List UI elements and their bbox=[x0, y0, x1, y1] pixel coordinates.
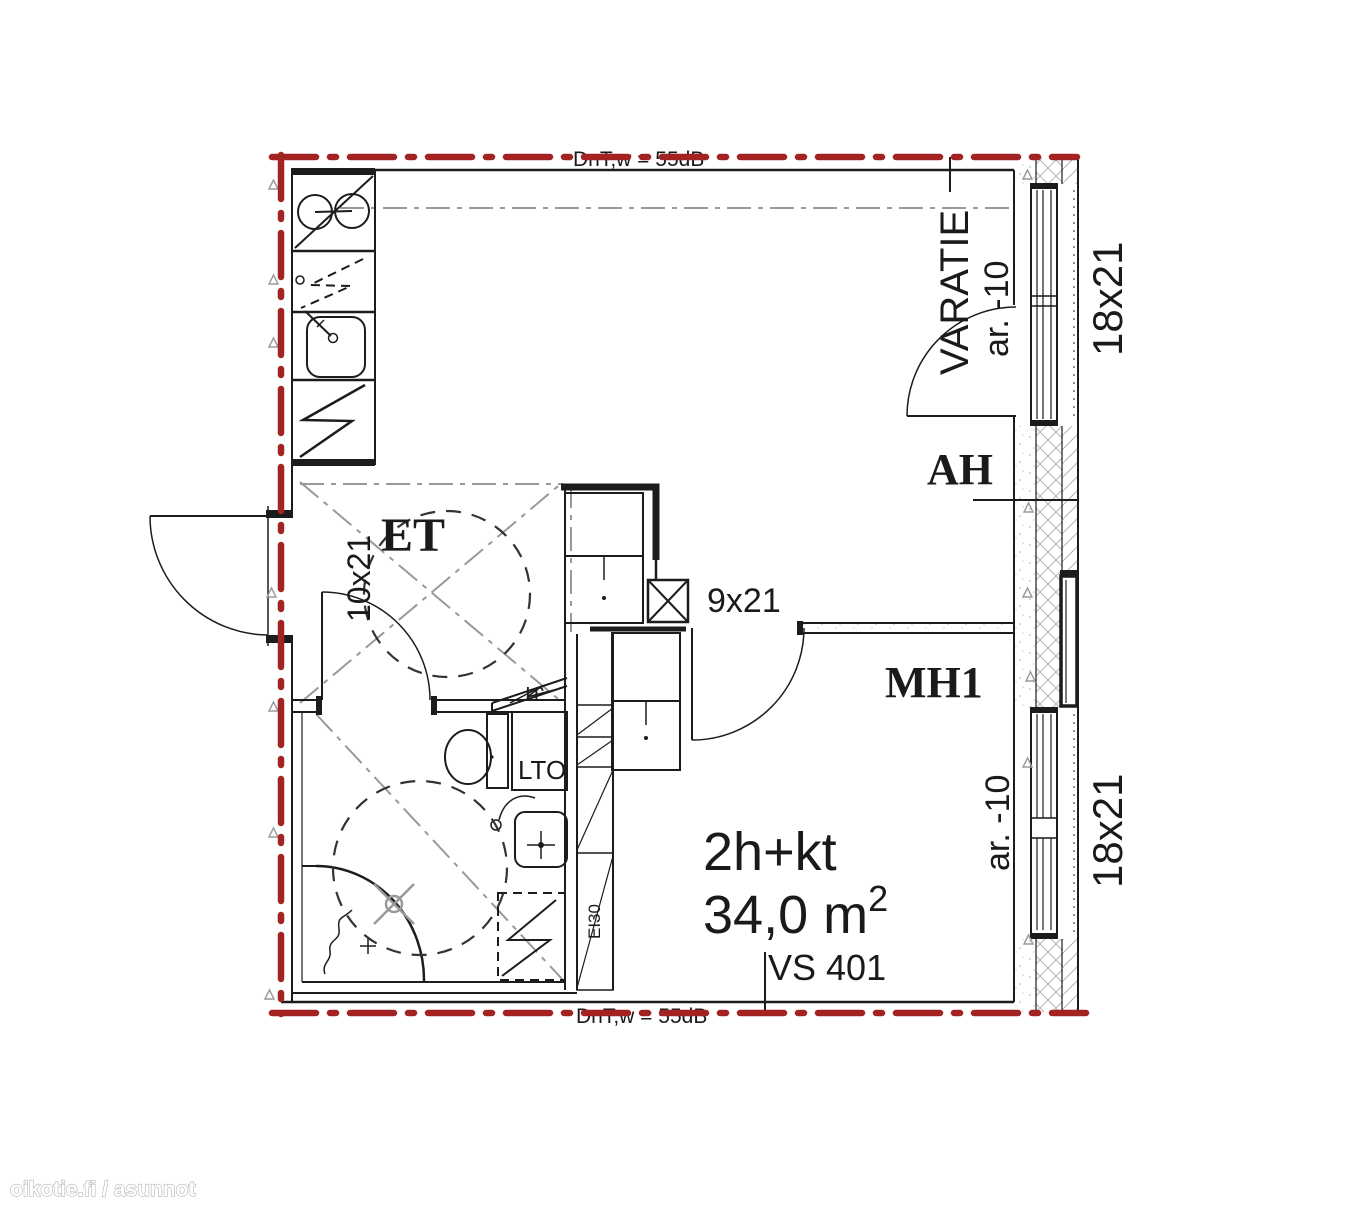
guide-lines bbox=[300, 208, 1012, 980]
heat-recovery-unit-label: LTO bbox=[518, 755, 566, 785]
window-top bbox=[1031, 184, 1074, 425]
window-size-label-bottom: 18x21 bbox=[1084, 774, 1131, 888]
entrance-door bbox=[150, 516, 267, 635]
elevation-label-bottom: ar. -10 bbox=[979, 775, 1017, 871]
elevation-label-top: ar. -10 bbox=[978, 261, 1016, 357]
door-size-label-bedroom: 9x21 bbox=[707, 582, 781, 620]
room-label-bedroom: MH1 bbox=[885, 658, 983, 707]
window-bottom bbox=[1031, 708, 1074, 938]
watermark: oikotie.fi / asunnot bbox=[10, 1178, 196, 1201]
bathroom-turning-circle bbox=[333, 781, 507, 955]
stove bbox=[295, 176, 373, 248]
room-label-entry-hall: ET bbox=[381, 509, 445, 562]
plan-code-label: VS 401 bbox=[768, 947, 886, 988]
floor-plan-drawing: DnT,w = 55dB DnT,w = 55dB ET AH MH1 VARA… bbox=[0, 0, 1358, 1215]
kitchen-fixtures bbox=[292, 168, 375, 466]
area-exponent: 2 bbox=[868, 878, 888, 919]
window-size-label-top: 18x21 bbox=[1084, 242, 1131, 356]
apartment-type-label: 2h+kt bbox=[703, 822, 837, 882]
floor-plan-page: DnT,w = 55dB DnT,w = 55dB ET AH MH1 VARA… bbox=[0, 0, 1358, 1215]
bedroom-door bbox=[692, 628, 804, 740]
concrete-markers bbox=[265, 170, 1035, 999]
refrigerator-reservation bbox=[300, 385, 365, 457]
sound-insulation-label-bottom: DnT,w = 55dB bbox=[576, 1005, 707, 1028]
room-label-living-room: AH bbox=[927, 445, 993, 494]
bedroom-partition-wall bbox=[800, 623, 1014, 633]
fire-rating-label: EI30 bbox=[585, 904, 604, 939]
stair-window-frame bbox=[1061, 576, 1077, 706]
toilet bbox=[445, 714, 508, 788]
dishwasher-reservation bbox=[296, 259, 363, 308]
duct-shaft bbox=[648, 580, 688, 622]
kitchen-sink bbox=[305, 311, 365, 377]
floor-drain bbox=[374, 884, 414, 924]
cold-cabinet-label: JT bbox=[522, 682, 544, 704]
labels: DnT,w = 55dB DnT,w = 55dB ET AH MH1 VARA… bbox=[341, 148, 1131, 1028]
washing-machine-reservation bbox=[498, 893, 565, 980]
washbasin bbox=[491, 796, 567, 867]
shower bbox=[302, 866, 424, 982]
door-size-label-bathroom: 10x21 bbox=[341, 535, 377, 622]
apartment-area-label: 34,0 m2 bbox=[703, 878, 888, 945]
escape-route-label: VARATIE bbox=[933, 210, 977, 375]
